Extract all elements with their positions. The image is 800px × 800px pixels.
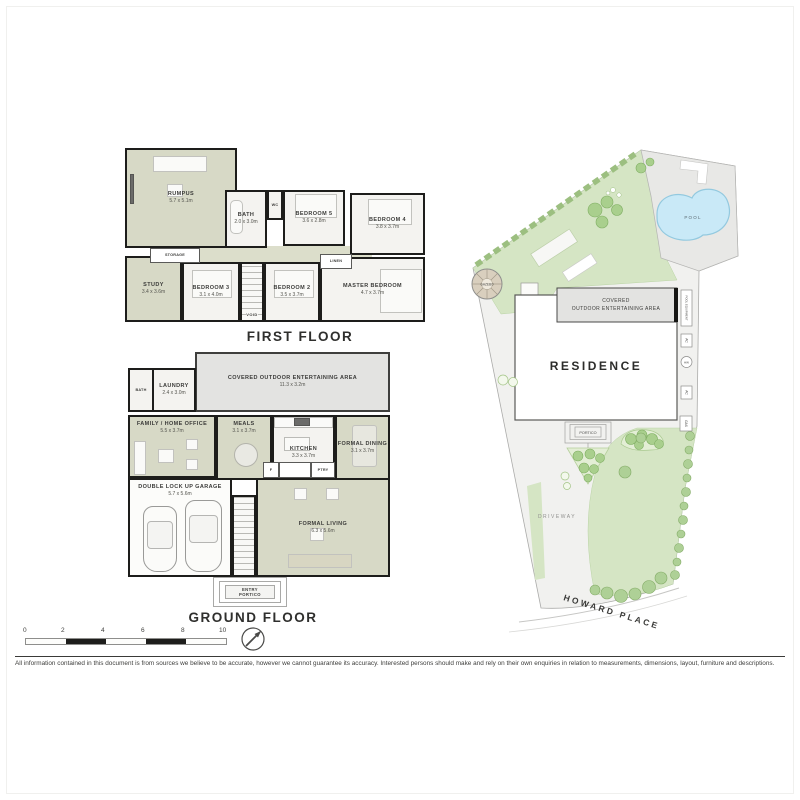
room-dims: 3.8 x 3.7m [376, 224, 399, 230]
room-label: MASTER BEDROOM [343, 283, 402, 290]
room-label: FORMAL DINING [338, 441, 387, 448]
room-laundry: LAUNDRY 2.4 x 3.0m [152, 368, 196, 412]
armchair [326, 488, 339, 500]
bench-box [279, 462, 311, 478]
chair [186, 459, 198, 470]
room-dims: 6.3 x 5.6m [311, 528, 334, 534]
first-floor-caption: FIRST FLOOR [210, 329, 390, 344]
room-label: PTRY [318, 468, 329, 473]
room-label: WC [272, 203, 279, 208]
room-label: STORAGE [165, 253, 185, 258]
stove [294, 418, 310, 426]
tv-unit [130, 174, 134, 204]
pool-label: POOL [684, 215, 701, 220]
room-dims: 2.0 x 3.0m [234, 219, 257, 225]
site-coea [557, 288, 677, 322]
room-bedroom4: BEDROOM 4 3.8 x 3.7m [350, 193, 425, 255]
scale-tick: 2 [61, 627, 65, 634]
ac-label: AC [684, 338, 688, 343]
scale-tick: 0 [23, 627, 27, 634]
coea-label-1: COVERED [602, 298, 630, 304]
car [185, 500, 222, 572]
disclaimer-text: All information contained in this docume… [15, 660, 785, 667]
scale-segment [106, 639, 146, 644]
ground-floor-caption: GROUND FLOOR [163, 610, 343, 625]
room-label: FORMAL LIVING [299, 521, 348, 528]
room-bath-first: BATH 2.0 x 3.0m [225, 190, 267, 248]
site-plan: POOL GAZEBO [445, 138, 745, 635]
armchair [294, 488, 307, 500]
room-label: COVERED OUTDOOR ENTERTAINING AREA [228, 375, 357, 382]
scale-tick: 6 [141, 627, 145, 634]
portico-steps: ENTRY PORTICO [213, 577, 287, 607]
room-dims: 3.6 x 2.8m [302, 218, 325, 224]
room-bedroom2: BEDROOM 2 3.5 x 3.7m [264, 262, 320, 322]
sofa [288, 554, 352, 568]
room-wc: WC [267, 190, 283, 220]
room-family-home-office: FAMILY / HOME OFFICE 5.5 x 3.7m [128, 415, 216, 478]
room-dims: 11.3 x 3.2m [280, 382, 306, 388]
room-label: BATH [135, 388, 146, 393]
coea-wall [674, 288, 678, 322]
scale-tick: 10 [219, 627, 226, 634]
scale-segment [26, 639, 66, 644]
gas-label: GAS [684, 420, 688, 427]
scale-segment [186, 639, 226, 644]
portico-label: PORTICO [239, 592, 261, 597]
room-rumpus: RUMPUS 5.7 x 5.1m [125, 148, 237, 248]
room-label: BATH [238, 212, 254, 219]
compass-icon [240, 626, 266, 652]
site-portico-label: PORTICO [579, 431, 596, 435]
coea-label-2: OUTDOOR ENTERTAINING AREA [572, 306, 661, 312]
scale-tick: 8 [181, 627, 185, 634]
room-dims: 3.4 x 3.6m [142, 289, 165, 295]
room-dims: 5.7 x 5.1m [169, 198, 192, 204]
portico-step: ENTRY PORTICO [219, 581, 281, 603]
room-pantry: PTRY [311, 462, 335, 478]
room-garage: DOUBLE LOCK UP GARAGE 5.7 x 5.6m [128, 478, 232, 577]
table [158, 449, 174, 463]
room-dims: 5.7 x 5.6m [168, 491, 191, 497]
room-label: LAUNDRY [159, 383, 188, 390]
driveway-label: DRIVEWAY [538, 514, 576, 520]
room-label: DOUBLE LOCK UP GARAGE [138, 484, 221, 491]
room-storage: STORAGE [150, 248, 200, 263]
room-formal-dining: FORMAL DINING 3.1 x 3.7m [335, 415, 390, 480]
room-label: VOID [246, 312, 257, 317]
room-bedroom3: BEDROOM 3 3.1 x 4.0m [182, 262, 240, 322]
pool-equipment-label: POOL EQUIPMENT [685, 295, 689, 320]
room-label: LINEN [330, 259, 342, 264]
room-bath-ground: BATH [128, 368, 154, 412]
residence-label: RESIDENCE [550, 359, 643, 373]
room-covered-outdoor-area: COVERED OUTDOOR ENTERTAINING AREA 11.3 x… [195, 352, 390, 412]
chair [186, 439, 198, 450]
footer-divider [15, 656, 785, 657]
room-dims: 4.7 x 3.7m [361, 290, 384, 296]
room-label: BEDROOM 2 [274, 285, 311, 292]
portico-step: ENTRY PORTICO [225, 585, 275, 599]
room-dims: 3.1 x 3.7m [351, 448, 374, 454]
room-label: BEDROOM 4 [369, 217, 406, 224]
scale-bar-segments [25, 638, 227, 645]
room-void-stairs: VOID [240, 262, 264, 322]
gazebo-label: GAZEBO [480, 283, 494, 287]
room-label: F [270, 468, 273, 473]
room-linen: LINEN [320, 254, 352, 269]
room-study: STUDY 3.4 x 3.6m [125, 256, 182, 322]
round-table [234, 443, 258, 467]
car-roof [147, 521, 173, 549]
room-dims: 3.5 x 3.7m [280, 292, 303, 298]
room-dims: 3.3 x 3.7m [292, 453, 315, 459]
bed [380, 269, 422, 313]
scale-tick: 4 [101, 627, 105, 634]
room-label: KITCHEN [290, 446, 317, 453]
room-label: BEDROOM 3 [193, 285, 230, 292]
car [143, 506, 177, 572]
room-dims: 5.5 x 3.7m [160, 428, 183, 434]
ground-stairs [232, 495, 256, 577]
room-dims: 3.1 x 4.0m [199, 292, 222, 298]
hw-label: HW [684, 360, 689, 364]
room-label: STUDY [143, 282, 164, 289]
room-label: MEALS [233, 421, 254, 428]
room-label: FAMILY / HOME OFFICE [137, 421, 207, 428]
scale-segment [146, 639, 186, 644]
room-bedroom5: BEDROOM 5 3.6 x 2.8m [283, 190, 345, 246]
room-label: RUMPUS [168, 191, 194, 198]
room-dims: 2.4 x 3.0m [162, 390, 185, 396]
car-roof [189, 515, 218, 543]
room-dims: 3.1 x 3.7m [232, 428, 255, 434]
sofa [153, 156, 207, 172]
floorplan-document: RUMPUS 5.7 x 5.1m BATH 2.0 x 3.0m WC BED… [0, 0, 800, 800]
gazebo: GAZEBO [472, 269, 502, 299]
room-formal-living: FORMAL LIVING 6.3 x 5.6m [256, 478, 390, 577]
sofa [134, 441, 146, 475]
room-label: BEDROOM 5 [296, 211, 333, 218]
ac-label: AC [684, 390, 688, 395]
scale-segment [66, 639, 106, 644]
fridge-box: F [263, 462, 279, 478]
